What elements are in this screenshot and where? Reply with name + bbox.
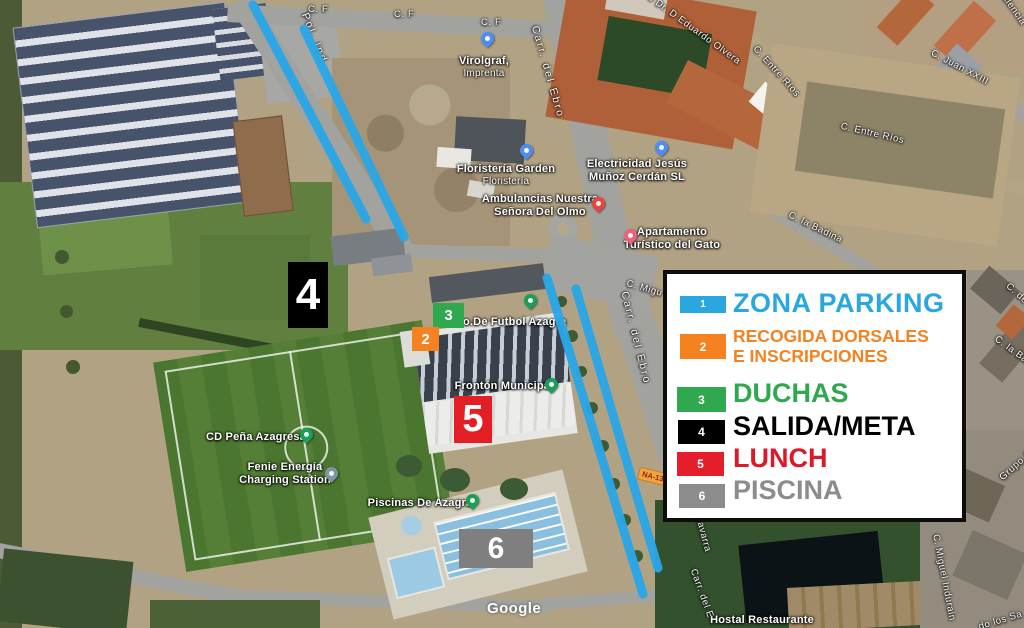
legend-swatch-piscina: 6 (679, 484, 725, 508)
marker-number: 4 (296, 270, 320, 320)
legend-swatch-duchas: 3 (677, 387, 726, 412)
legend-swatch-dorsales: 2 (680, 334, 726, 359)
legend-label-piscina: PISCINA (733, 477, 843, 504)
legend-label-parking: ZONA PARKING (733, 290, 945, 317)
legend-label-salida: SALIDA/META (733, 413, 916, 440)
marker-number: 2 (421, 331, 429, 348)
map-marker-piscina: 6 (459, 529, 533, 568)
map-marker-dorsales: 2 (412, 327, 439, 351)
event-map: 4 5 6 3 2 Virolgraf,Imprenta Floristería… (0, 0, 1024, 628)
map-marker-salida-meta: 4 (288, 262, 328, 328)
marker-number: 6 (488, 532, 505, 566)
legend-label-dorsales-1: RECOGIDA DORSALES (733, 328, 929, 346)
marker-number: 3 (444, 307, 452, 324)
legend-label-lunch: LUNCH (733, 445, 828, 472)
legend-swatch-parking: 1 (680, 296, 726, 313)
map-marker-lunch: 5 (454, 396, 492, 443)
legend: 1 ZONA PARKING 2 RECOGIDA DORSALES E INS… (663, 270, 966, 522)
legend-label-duchas: DUCHAS (733, 380, 849, 407)
legend-label-dorsales-2: E INSCRIPCIONES (733, 348, 888, 366)
google-watermark: Google (487, 600, 541, 617)
legend-swatch-salida: 4 (678, 420, 725, 444)
marker-number: 5 (462, 398, 483, 441)
map-marker-duchas: 3 (433, 303, 464, 328)
legend-swatch-lunch: 5 (677, 452, 724, 476)
